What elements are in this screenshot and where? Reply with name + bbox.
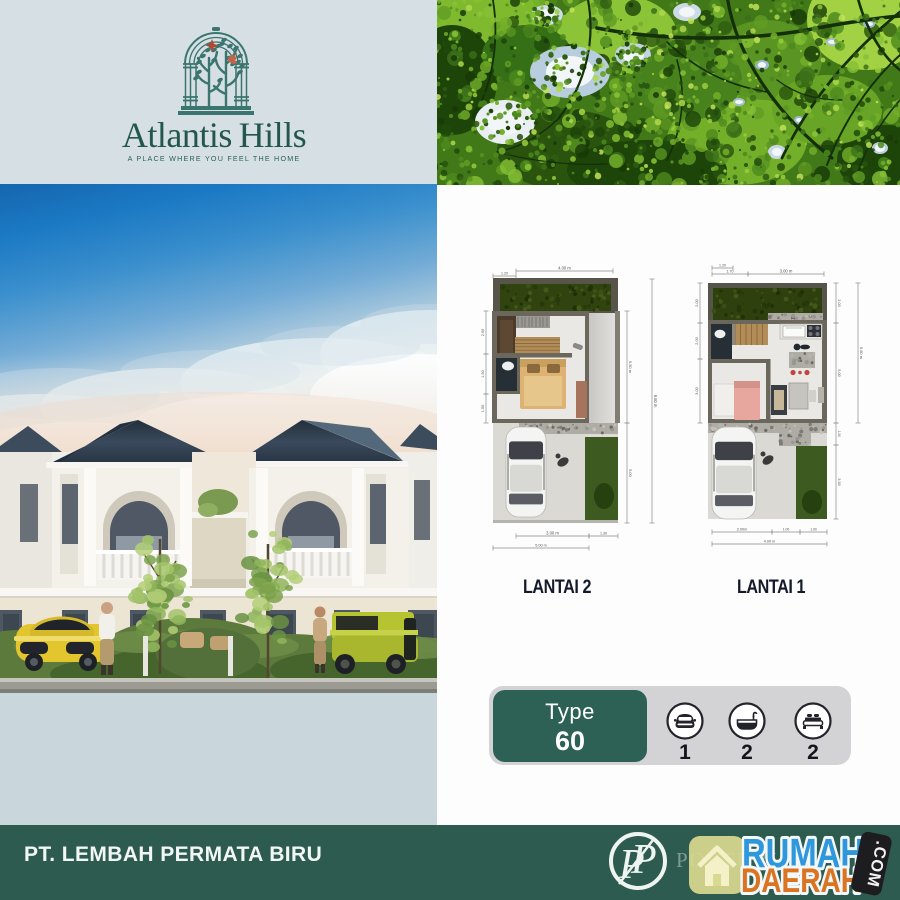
svg-text:A PLACE WHERE YOU FEEL THE HOM: A PLACE WHERE YOU FEEL THE HOME [128,154,301,163]
svg-text:2.00: 2.00 [695,299,699,306]
svg-text:5.00: 5.00 [837,369,841,376]
svg-text:2: 2 [741,741,753,764]
svg-text:2.00: 2.00 [837,299,841,306]
svg-text:3.00 m: 3.00 m [780,269,793,274]
svg-text:P: P [630,837,657,883]
svg-text:1.50: 1.50 [481,405,485,412]
svg-text:DAERAH: DAERAH [741,862,861,900]
svg-text:5.00: 5.00 [628,469,633,478]
svg-text:4.00 m: 4.00 m [558,266,571,271]
svg-text:2.00m: 2.00m [737,528,748,532]
svg-text:1.70: 1.70 [727,270,734,274]
svg-text:1.30: 1.30 [600,532,607,536]
svg-text:Atlantis Hills: Atlantis Hills [122,115,306,155]
svg-text:3.50: 3.50 [837,478,841,485]
svg-text:9.60 m: 9.60 m [859,347,864,360]
svg-text:1.00: 1.00 [783,528,790,532]
svg-text:4.00 m: 4.00 m [764,540,776,544]
svg-text:5.00 m: 5.00 m [535,544,547,548]
svg-text:3.00: 3.00 [695,387,699,394]
svg-text:9.50 m: 9.50 m [628,361,633,374]
svg-text:9.60 m: 9.60 m [653,395,658,408]
svg-text:1.20: 1.20 [501,272,508,276]
svg-text:1: 1 [679,741,691,764]
svg-text:1.20: 1.20 [719,264,726,268]
svg-text:2.00: 2.00 [695,337,699,344]
svg-text:3.00 m: 3.00 m [546,531,559,536]
svg-text:2.00: 2.00 [481,329,485,336]
svg-text:1.50: 1.50 [481,370,485,377]
svg-text:1.50: 1.50 [837,431,841,438]
svg-text:1.00: 1.00 [810,528,817,532]
svg-text:2: 2 [807,741,819,764]
